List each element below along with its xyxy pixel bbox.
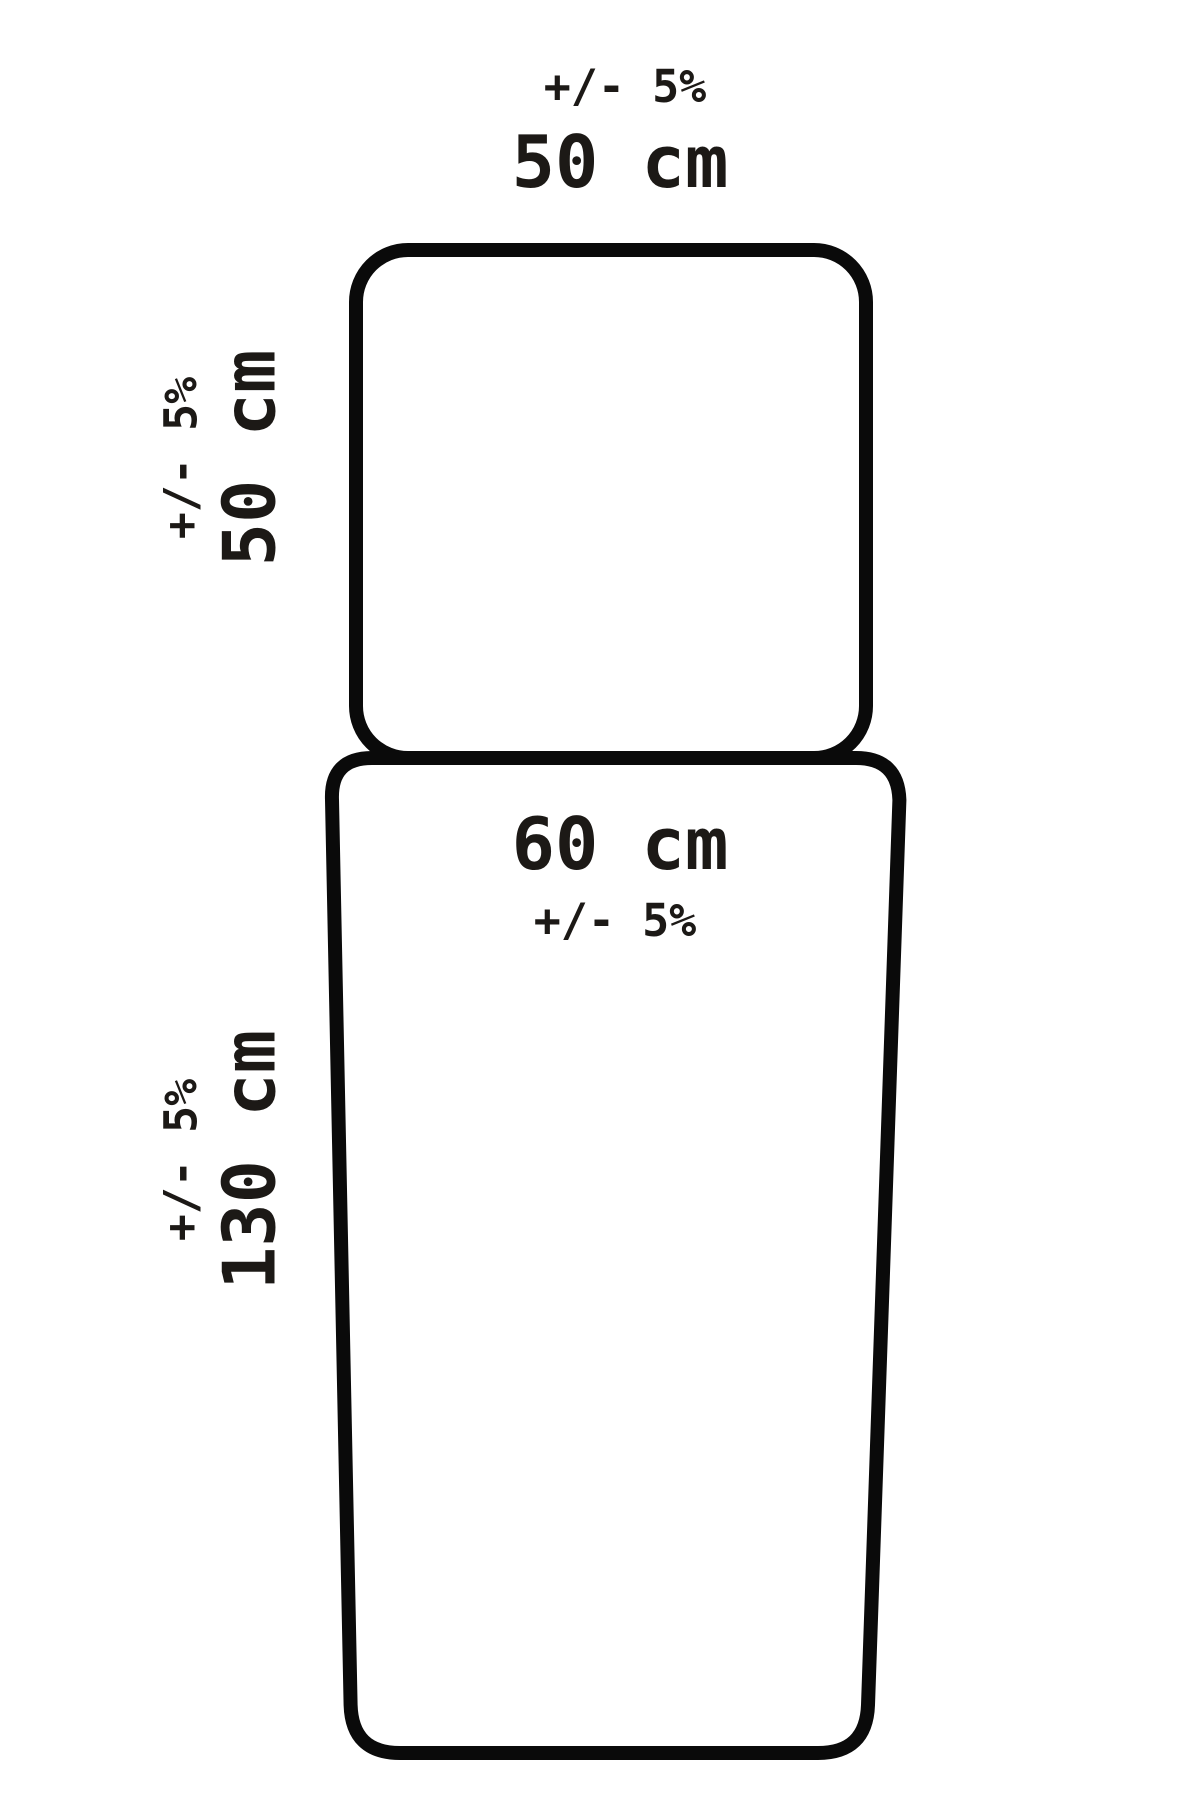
square-width-tolerance-label: +/- 5%: [544, 64, 707, 109]
tapered-length-value-label: 130 cm: [214, 1030, 286, 1290]
square-height-tolerance-label: +/- 5%: [159, 377, 204, 540]
square-height-value-label: 50 cm: [214, 350, 286, 567]
tapered-length-tolerance-label: +/- 5%: [159, 1079, 204, 1242]
square-height-annotation: +/- 5% 50 cm: [159, 350, 286, 567]
tapered-length-annotation: +/- 5% 130 cm: [159, 1030, 286, 1290]
dimension-diagram-page: +/- 5% 50 cm +/- 5% 50 cm 60 cm +/- 5% +…: [0, 0, 1200, 1800]
tapered-width-value-label: 60 cm: [512, 808, 729, 880]
square-width-value-label: 50 cm: [512, 126, 729, 198]
tapered-width-tolerance-label: +/- 5%: [534, 898, 697, 943]
square-section-outline: [356, 250, 866, 758]
